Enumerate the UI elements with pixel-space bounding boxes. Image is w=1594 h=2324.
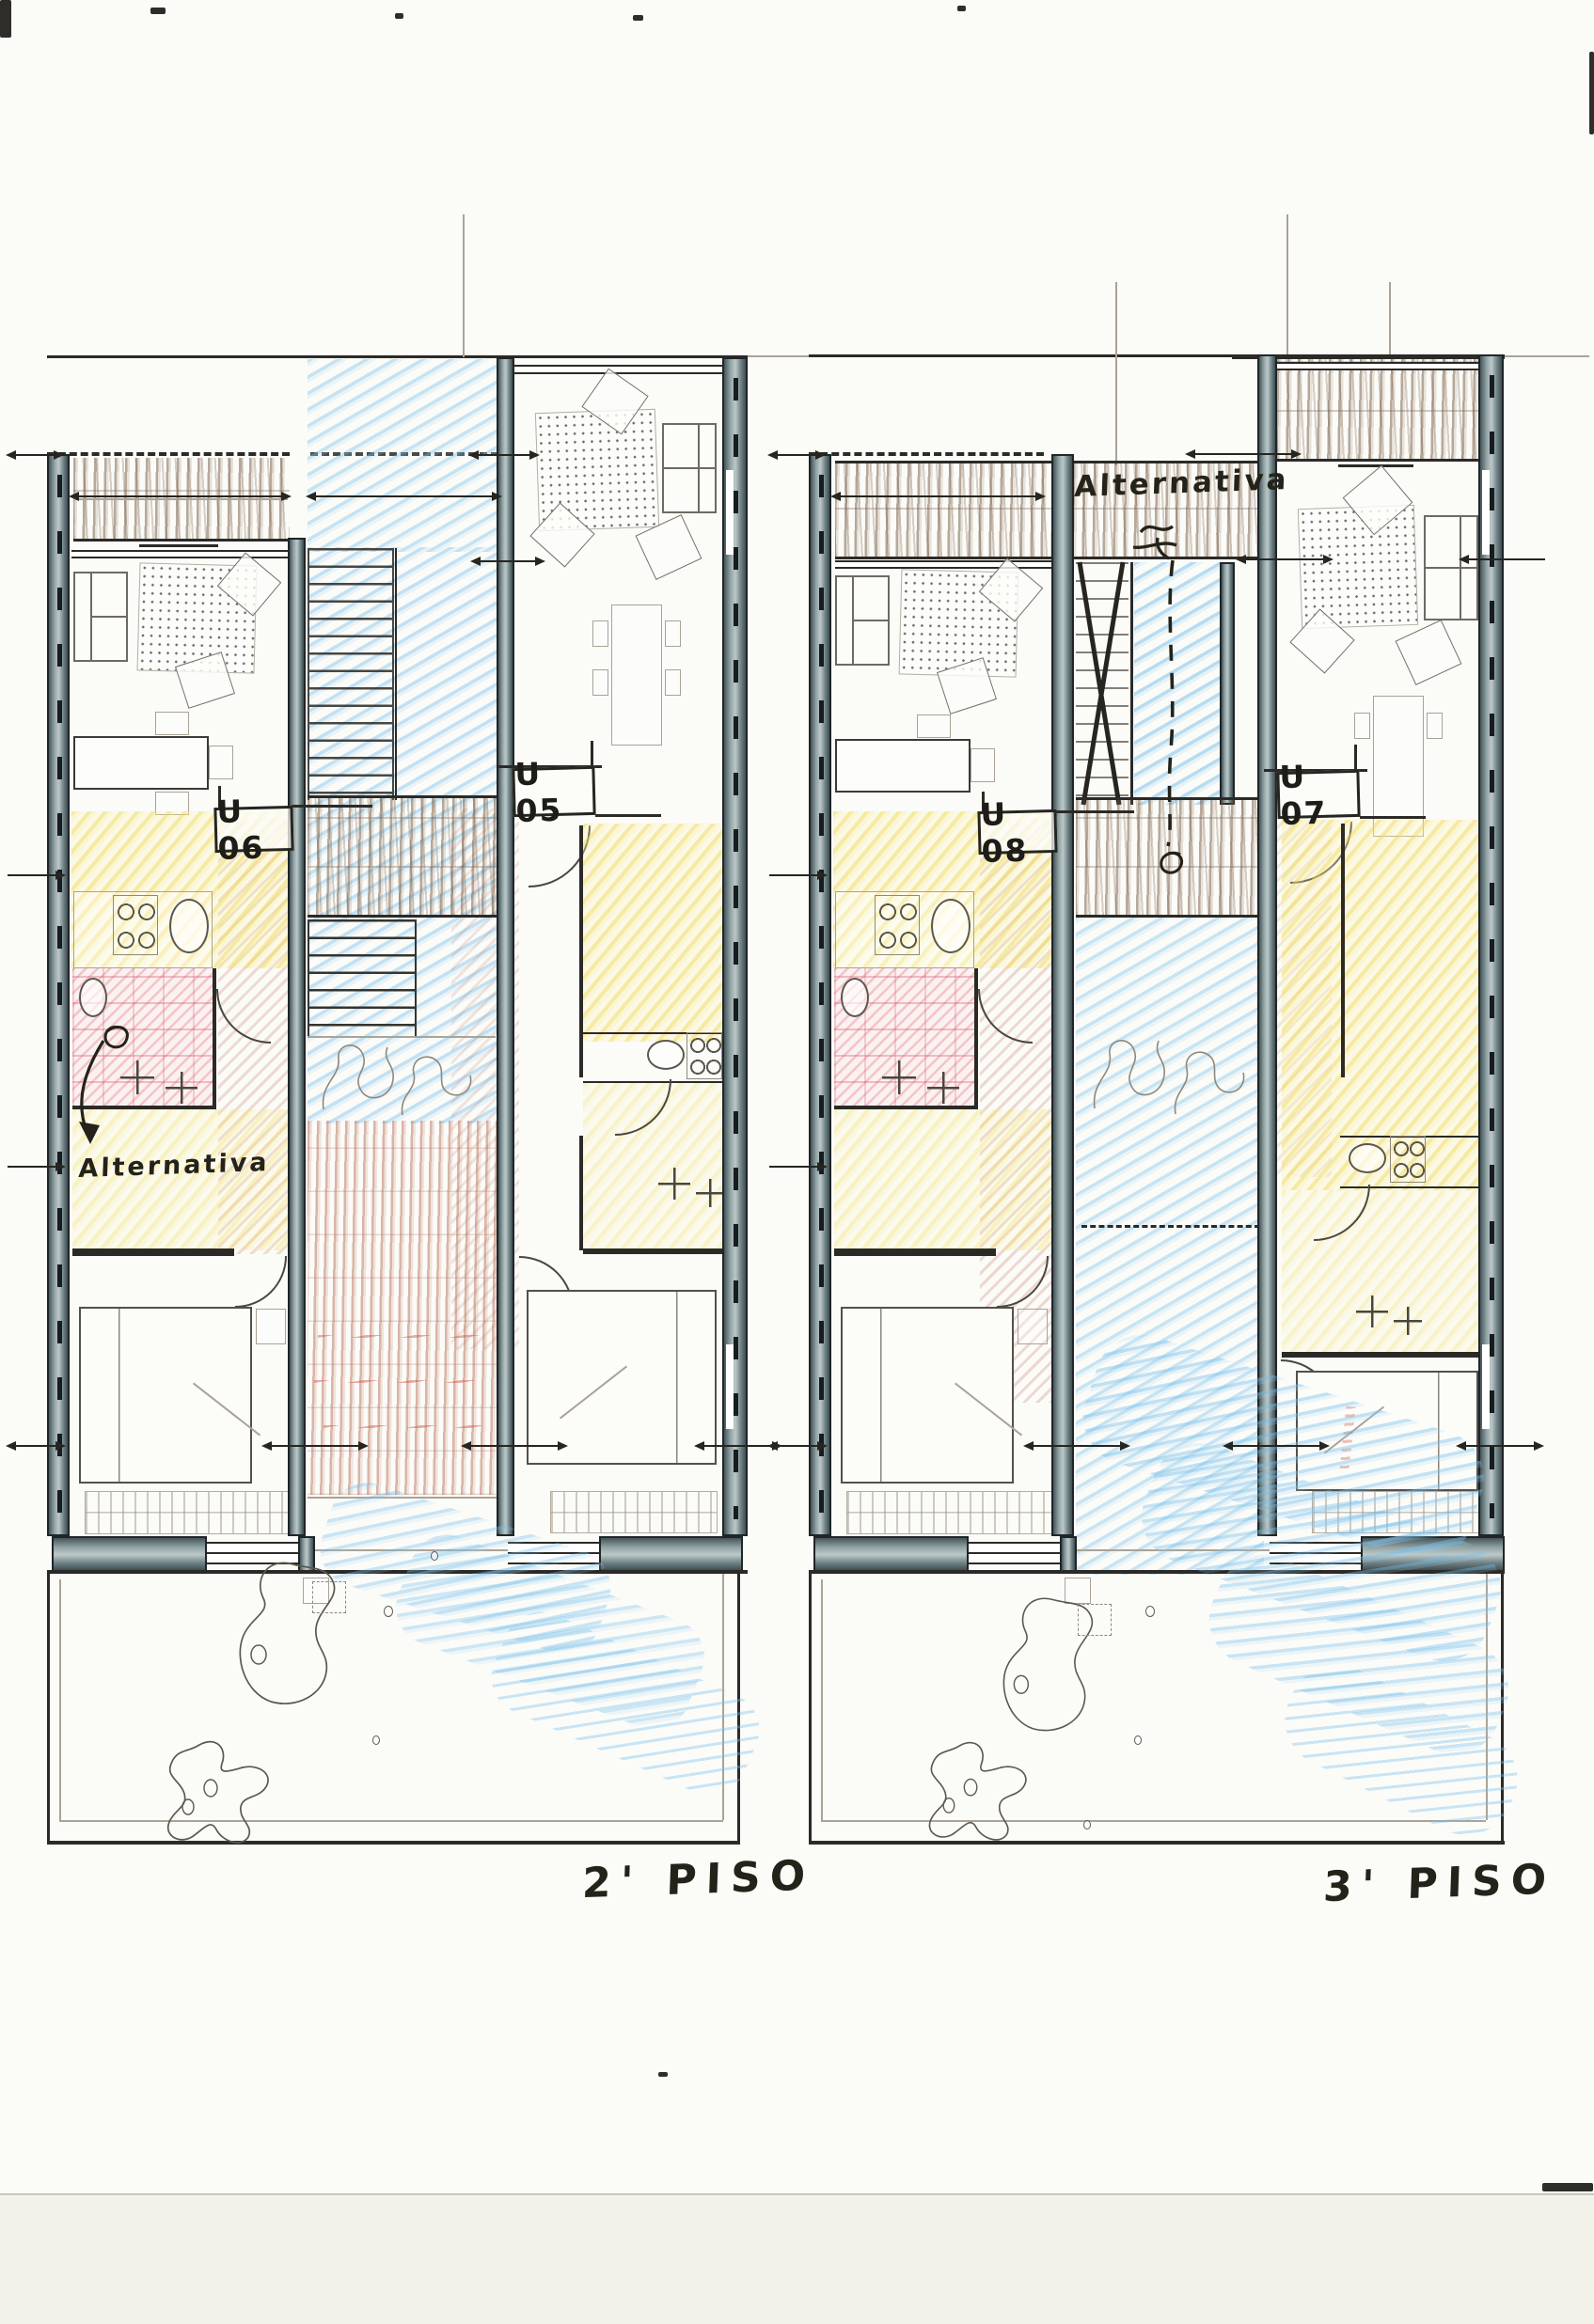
p2-u05-sink bbox=[647, 1040, 685, 1070]
p3-dim-tick-top bbox=[1115, 282, 1117, 465]
p2-u05-top-window bbox=[514, 365, 722, 374]
p3-court-dot bbox=[1134, 1735, 1142, 1745]
p2-deck-red-line bbox=[314, 1380, 487, 1383]
p2-u06-bedroom-door-arc bbox=[235, 1256, 287, 1308]
p2-court-dot bbox=[431, 1551, 438, 1561]
p2-core-wall-left bbox=[288, 538, 306, 1536]
dim-arrow bbox=[463, 1445, 566, 1447]
p3-u07-rug bbox=[1299, 506, 1417, 628]
p3-balcony-rail bbox=[1277, 459, 1478, 462]
p2-court-dot bbox=[384, 1606, 393, 1617]
p2-unit-right-label-text: U 05 bbox=[514, 754, 593, 829]
p3-exterior-wall-left bbox=[809, 454, 831, 1536]
p3-u07-shower-cross bbox=[1394, 1307, 1422, 1335]
p3-unit-left-label-text: U 08 bbox=[980, 794, 1055, 870]
dim-arrow bbox=[769, 1445, 826, 1447]
p2-u05-chair bbox=[665, 620, 681, 647]
p3-annotation-arrow bbox=[1124, 515, 1237, 891]
p2-stair-stringer bbox=[395, 548, 397, 800]
p2-lot-line-left bbox=[47, 1574, 50, 1845]
p3-court-dot bbox=[1083, 1820, 1091, 1829]
p3-south-wall bbox=[813, 1536, 969, 1572]
dim-arrow bbox=[8, 874, 64, 876]
p3-south-wall-stub bbox=[1060, 1536, 1077, 1572]
p2-lower-deck-terracotta bbox=[308, 1121, 497, 1495]
speck bbox=[957, 6, 966, 11]
p2-window-slot bbox=[726, 470, 734, 555]
p2-u05-chair bbox=[665, 669, 681, 696]
p3-u07-chair bbox=[1354, 713, 1370, 739]
p3-south-window bbox=[969, 1542, 1060, 1564]
p2-dim-tick-top bbox=[463, 214, 465, 357]
p2-u06-wall bbox=[72, 1248, 234, 1256]
p2-court-line-left bbox=[59, 1579, 61, 1822]
p3-lot-line-left bbox=[809, 1574, 812, 1845]
p3-u07-sofa bbox=[1424, 515, 1478, 620]
p2-u05-dining-table-pencil bbox=[611, 605, 662, 746]
p3-u07-wall bbox=[1282, 1352, 1481, 1358]
p3-u07-stove-burners bbox=[1390, 1136, 1426, 1183]
p3-u07-kitchen-yellow bbox=[1282, 820, 1479, 1190]
p3-scissor-stair-x bbox=[1076, 562, 1128, 805]
p2-u06-chair bbox=[209, 746, 233, 779]
p2-u06-nightstand bbox=[256, 1309, 286, 1344]
wall-dashes bbox=[1490, 375, 1494, 1518]
dim-arrow bbox=[8, 1445, 64, 1447]
p2-planting-squiggle bbox=[312, 1036, 496, 1123]
p2-u05-shower-cross bbox=[658, 1168, 690, 1200]
p3-dim-tick-top bbox=[1389, 282, 1391, 357]
speck bbox=[633, 15, 643, 21]
p2-shrub-blob bbox=[162, 1739, 289, 1845]
p3-u08-chair bbox=[917, 714, 951, 738]
dim-arrow bbox=[1025, 1445, 1128, 1447]
p2-u06-stove-burners bbox=[113, 895, 158, 955]
p3-window-slot bbox=[1482, 470, 1490, 555]
p2-exterior-wall-left bbox=[47, 454, 70, 1536]
p2-u06-bed bbox=[79, 1307, 252, 1484]
dim-arrow bbox=[1460, 558, 1545, 560]
sketch-sheet: U 06 U 05 Alternativa 2' PISO bbox=[0, 0, 1594, 2324]
dim-arrow bbox=[71, 495, 290, 497]
p3-u08-dining-table bbox=[835, 739, 971, 793]
p2-u05-chair bbox=[592, 669, 608, 696]
p2-u06-shower-cross bbox=[166, 1072, 197, 1104]
p2-u06-sofa bbox=[73, 572, 128, 662]
p3-unit-left-label: U 08 bbox=[977, 809, 1057, 855]
p3-court-dot bbox=[1145, 1606, 1155, 1617]
p3-core-wall-left bbox=[1051, 454, 1074, 1536]
p3-u07-label-tail bbox=[1360, 816, 1426, 819]
p2-deck-edge bbox=[308, 915, 497, 918]
p3-u08-hall-yellow bbox=[834, 1109, 1052, 1250]
p2-caption-text: 2' PISO bbox=[581, 1851, 815, 1908]
p3-planting-squiggle bbox=[1081, 1029, 1260, 1123]
p2-paver-dashed bbox=[312, 1581, 346, 1613]
p2-unit-right-label: U 05 bbox=[512, 766, 595, 817]
p2-deck-red-line bbox=[318, 1335, 485, 1338]
p3-u07-armchair bbox=[1396, 620, 1462, 685]
p2-u05-chair bbox=[592, 620, 608, 647]
p2-deck-edge bbox=[308, 795, 497, 798]
p2-central-deck-hatch bbox=[308, 798, 497, 917]
p2-court-dot bbox=[372, 1735, 380, 1745]
p2-window-slot bbox=[726, 1344, 734, 1429]
p3-u08-bed bbox=[841, 1307, 1014, 1484]
p3-u08-wall bbox=[834, 1248, 996, 1256]
speck bbox=[1542, 2183, 1593, 2191]
p3-court-line-left bbox=[821, 1579, 823, 1822]
p2-u05-wardrobe bbox=[550, 1491, 718, 1533]
p2-u05-sofa bbox=[662, 423, 717, 513]
p2-u05-wall bbox=[583, 1248, 724, 1254]
dim-arrow bbox=[8, 454, 62, 456]
dim-arrow bbox=[472, 560, 544, 562]
p2-u06-dining-table bbox=[73, 736, 209, 790]
p3-window-slot bbox=[1482, 1344, 1490, 1429]
p2-stair-lower-treads bbox=[308, 919, 417, 1036]
p2-south-wall bbox=[599, 1536, 743, 1572]
p2-unit-left-label: U 06 bbox=[213, 806, 293, 853]
p3-property-dashed-line bbox=[809, 452, 1044, 456]
p2-stair-upper-treads bbox=[308, 548, 394, 800]
speck bbox=[150, 8, 166, 14]
wall-dashes bbox=[819, 475, 824, 1518]
p3-paver-dashed bbox=[1078, 1604, 1112, 1636]
p3-lot-line-bottom bbox=[809, 1841, 1505, 1845]
dim-arrow bbox=[1458, 1445, 1542, 1447]
p3-dim-tick-top bbox=[1286, 214, 1288, 357]
p3-core-wall-right bbox=[1257, 354, 1277, 1536]
speck bbox=[395, 13, 403, 19]
p3-unit-right-label: U 07 bbox=[1276, 770, 1360, 819]
p3-u08-chair bbox=[971, 748, 995, 782]
p3-deck-edge bbox=[835, 461, 1257, 463]
p2-u05-partition bbox=[579, 825, 583, 1077]
p3-u07-shower-cross bbox=[1356, 1295, 1388, 1327]
p3-dashed-line bbox=[1081, 1225, 1260, 1228]
p2-lot-line-bottom bbox=[47, 1841, 740, 1845]
dim-arrow bbox=[1224, 1445, 1328, 1447]
p3-u08-shower-cross bbox=[882, 1060, 916, 1094]
p2-court-line-bottom bbox=[59, 1820, 723, 1822]
p3-u08-toilet bbox=[841, 978, 869, 1017]
p3-u08-nightstand bbox=[1018, 1309, 1048, 1344]
p3-caption-text: 3' PISO bbox=[1322, 1855, 1556, 1911]
p3-u07-sink bbox=[1349, 1143, 1386, 1173]
p2-u06-window-wall bbox=[71, 550, 290, 558]
p2-u06-balcony-step bbox=[139, 544, 218, 547]
p2-core-wall-right bbox=[497, 357, 514, 1536]
p2-u05-partition bbox=[579, 1136, 583, 1250]
p2-u06-balcony-rail bbox=[73, 539, 306, 542]
dim-arrow bbox=[308, 495, 500, 497]
p2-u05-bed bbox=[527, 1290, 717, 1465]
scan-edge bbox=[0, 2193, 1594, 2324]
p2-alternativa-arrow bbox=[58, 1011, 143, 1147]
dim-arrow bbox=[769, 1166, 826, 1168]
p3-balcony-step bbox=[1338, 464, 1413, 467]
wall-dashes bbox=[57, 475, 62, 1518]
speck bbox=[1589, 52, 1594, 134]
p2-u06-wardrobe bbox=[85, 1491, 301, 1534]
p2-u05-stove-burners bbox=[687, 1032, 722, 1079]
p3-guide-line bbox=[1502, 355, 1589, 357]
p3-u07-bath-yellow bbox=[1282, 1190, 1479, 1352]
p2-building-top-line bbox=[47, 355, 748, 358]
p2-property-dashed-line bbox=[47, 452, 290, 456]
p3-u08-wardrobe bbox=[846, 1491, 1063, 1534]
p3-u08-sink bbox=[931, 899, 971, 953]
speck bbox=[658, 2072, 668, 2077]
speck bbox=[0, 0, 11, 38]
p3-u07-partition bbox=[1341, 824, 1345, 1077]
p3-u08-shower-cross bbox=[927, 1072, 959, 1104]
dim-arrow bbox=[1187, 453, 1300, 455]
dim-arrow bbox=[263, 1445, 367, 1447]
dim-arrow bbox=[470, 454, 538, 456]
p3-guide-line bbox=[748, 355, 809, 357]
p2-unit-left-label-text: U 06 bbox=[216, 792, 292, 867]
wall-dashes bbox=[734, 378, 738, 1519]
p3-u07-chair bbox=[1427, 713, 1443, 739]
p2-u06-chair bbox=[155, 712, 189, 735]
dim-arrow bbox=[8, 1166, 64, 1168]
p2-south-wall bbox=[52, 1536, 207, 1572]
p2-u06-balcony-joint bbox=[75, 498, 288, 500]
dim-arrow bbox=[1238, 558, 1332, 560]
p2-deck-red-line bbox=[324, 1425, 481, 1428]
p3-u08-sofa bbox=[835, 575, 890, 666]
p3-u08-stove-burners bbox=[875, 895, 920, 955]
dim-arrow bbox=[832, 495, 1044, 497]
p3-u08-label-tail bbox=[1053, 810, 1134, 813]
p2-u06-sink bbox=[169, 899, 209, 953]
p3-balcony-deck-hatch bbox=[1277, 359, 1478, 461]
p3-deck-edge bbox=[1076, 915, 1277, 918]
p2-u05-kitchen-yellow bbox=[583, 824, 722, 1042]
p2-u06-label-tail bbox=[292, 805, 372, 808]
p3-unit-right-label-text: U 07 bbox=[1279, 757, 1358, 832]
dim-arrow bbox=[769, 454, 824, 456]
p2-u05-shower-cross bbox=[696, 1179, 724, 1207]
p3-u07-top-window bbox=[1277, 362, 1478, 370]
p2-u05-label-tail bbox=[595, 814, 661, 817]
dim-arrow bbox=[769, 874, 826, 876]
p3-shrub-blob bbox=[923, 1739, 1046, 1843]
p3-court-line-bottom bbox=[821, 1820, 1486, 1822]
